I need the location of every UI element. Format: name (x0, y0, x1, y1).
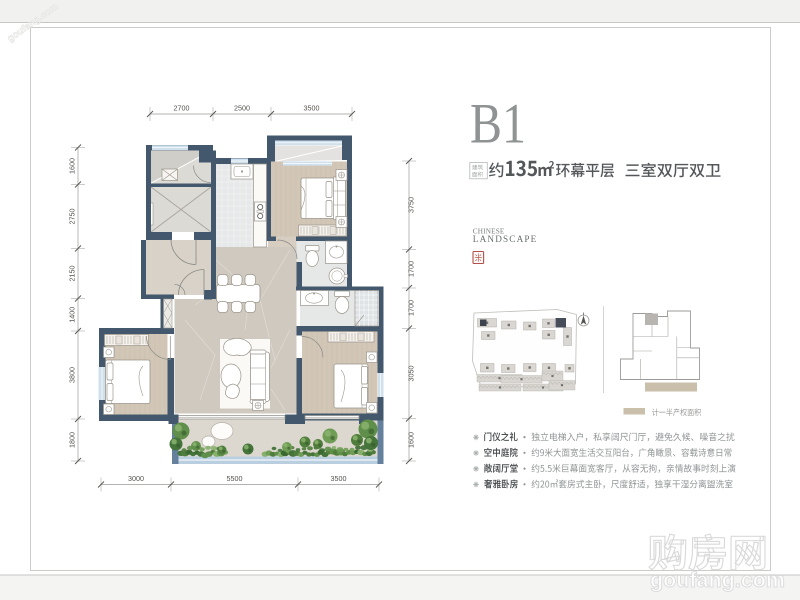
svg-text:3050: 3050 (407, 366, 416, 382)
svg-text:2750: 2750 (68, 209, 77, 225)
svg-text:5500: 5500 (227, 474, 243, 483)
svg-text:1700: 1700 (407, 300, 416, 316)
svg-text:goufang.com: goufang.com (650, 568, 785, 592)
svg-text:3500: 3500 (331, 474, 347, 483)
svg-text:LANDSCAPE: LANDSCAPE (473, 234, 537, 244)
svg-text:2150: 2150 (68, 266, 77, 282)
svg-text:2500: 2500 (234, 104, 250, 113)
svg-text:1600: 1600 (68, 158, 77, 174)
svg-text:3500: 3500 (304, 104, 320, 113)
svg-text:1400: 1400 (68, 307, 77, 323)
svg-text:3000: 3000 (128, 474, 144, 483)
svg-text:1700: 1700 (407, 261, 416, 277)
svg-text:3800: 3800 (68, 367, 77, 383)
svg-text:1800: 1800 (68, 432, 77, 448)
svg-text:3750: 3750 (407, 197, 416, 213)
svg-text:B1: B1 (470, 93, 526, 156)
svg-text:1600: 1600 (407, 432, 416, 448)
svg-text:2700: 2700 (174, 104, 190, 113)
